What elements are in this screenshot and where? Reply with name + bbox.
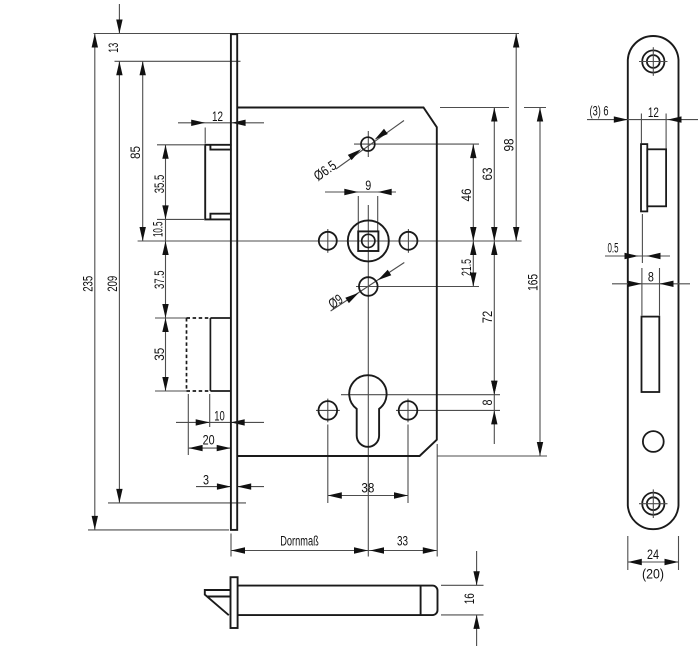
svg-text:8: 8	[479, 399, 495, 405]
svg-text:21.5: 21.5	[458, 259, 474, 276]
svg-text:165: 165	[525, 274, 541, 291]
svg-text:Dornmaß: Dornmaß	[280, 533, 319, 548]
svg-text:12: 12	[212, 108, 223, 124]
svg-text:235: 235	[79, 276, 95, 292]
svg-text:35.5: 35.5	[151, 175, 167, 194]
svg-text:85: 85	[127, 146, 143, 159]
svg-text:0.5: 0.5	[608, 240, 619, 256]
svg-text:209: 209	[104, 276, 120, 292]
svg-text:(20): (20)	[642, 566, 664, 582]
svg-text:9: 9	[365, 177, 371, 193]
svg-text:12: 12	[648, 104, 659, 120]
svg-text:46: 46	[458, 188, 474, 201]
svg-text:37.5: 37.5	[151, 270, 167, 289]
svg-text:3: 3	[203, 472, 209, 488]
svg-text:13: 13	[105, 43, 121, 53]
svg-text:10.5: 10.5	[150, 221, 166, 237]
svg-text:72: 72	[479, 311, 495, 324]
svg-text:24: 24	[647, 546, 659, 562]
svg-text:33: 33	[397, 533, 408, 549]
svg-text:63: 63	[479, 167, 495, 180]
svg-text:(3) 6: (3) 6	[590, 102, 609, 118]
svg-text:35: 35	[151, 348, 167, 361]
svg-text:10: 10	[214, 407, 225, 423]
svg-text:98: 98	[501, 138, 517, 151]
svg-text:16: 16	[461, 593, 477, 604]
svg-text:8: 8	[648, 268, 654, 284]
svg-text:38: 38	[361, 480, 374, 496]
svg-text:20: 20	[203, 432, 215, 448]
